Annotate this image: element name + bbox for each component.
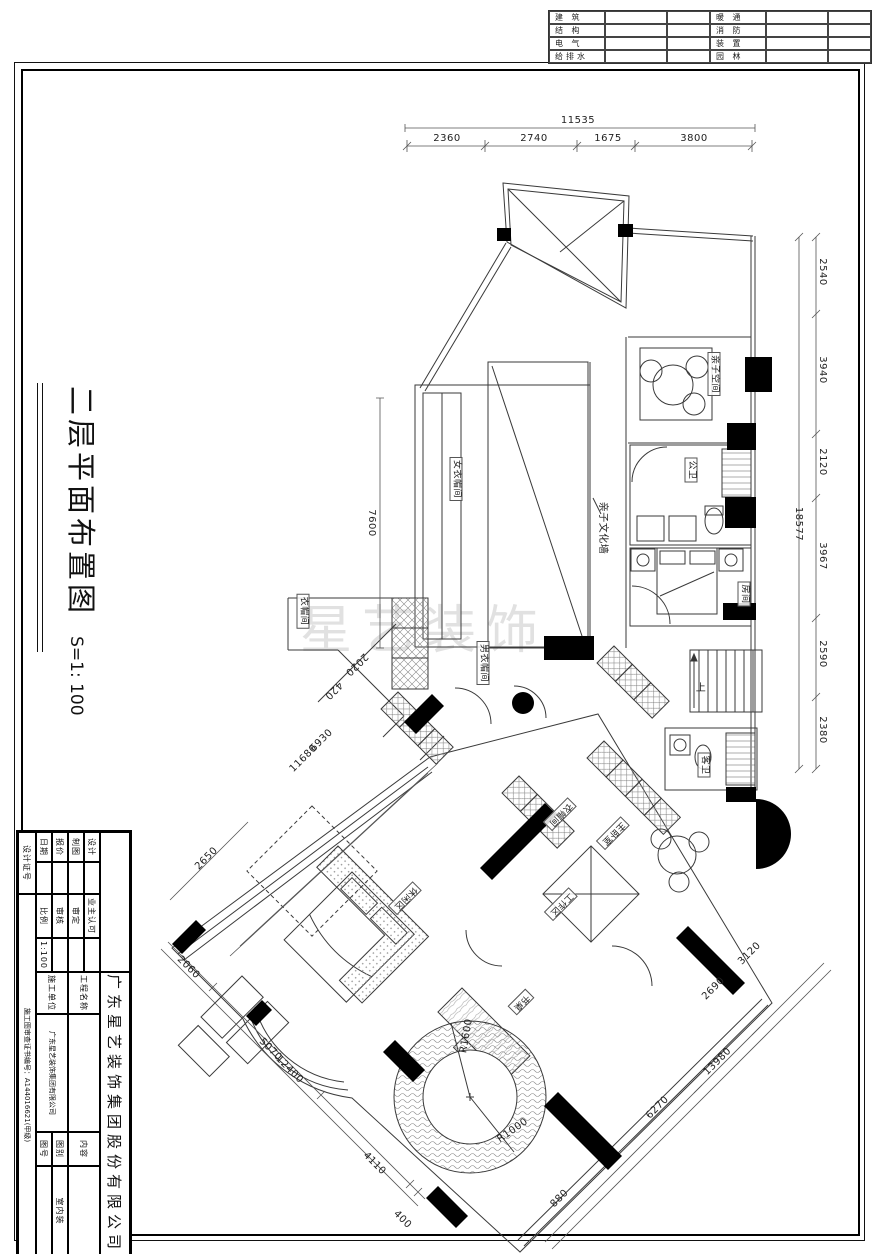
content-value (68, 1166, 100, 1254)
title-block: 广东星艺装饰集团股份有限公司 设计 业主认可 工程名称 内容 制图 审定 报价 … (16, 830, 132, 1254)
approved-label: 审定 (68, 894, 84, 938)
checked-value (52, 938, 68, 972)
title-rule-line (37, 383, 38, 652)
category-label: 图别 (52, 1132, 68, 1166)
owner-approve-value (84, 938, 100, 972)
draft-label: 制图 (68, 832, 84, 862)
scale-value: 1:100 (36, 938, 52, 972)
draft-value (68, 862, 84, 894)
builder-label: 施工单位 (36, 972, 68, 1014)
date-value (36, 862, 52, 894)
sheet-no-value (36, 1166, 52, 1254)
project-name-label: 工程名称 (68, 972, 100, 1014)
builder-value: 广东星艺装饰集团有限公司 (36, 1014, 68, 1132)
approved-value (68, 938, 84, 972)
title-block-blank (100, 832, 130, 972)
sheet-title-text: 二层平面布置图 (64, 386, 98, 617)
company-name: 广东星艺装饰集团股份有限公司 (100, 972, 130, 1254)
checked-label: 审核 (52, 894, 68, 938)
sheet-title-scale: S=1: 100 (66, 636, 86, 715)
content-label: 内容 (68, 1132, 100, 1166)
title-rule-line (42, 383, 43, 652)
design-value (84, 862, 100, 894)
sheet-title: 二层平面布置图 S=1: 100 (52, 386, 104, 648)
design-label: 设计 (84, 832, 100, 862)
quote-label: 报价 (52, 832, 68, 862)
cert-no-label: 设计证号 (18, 832, 36, 894)
cert-text: 施工图审查证书编号：A144016621(甲级) (18, 894, 36, 1254)
quote-value (52, 862, 68, 894)
project-name-value (68, 1014, 100, 1132)
date-label: 日期 (36, 832, 52, 862)
sheet-no-label: 图号 (36, 1132, 52, 1166)
scale-label: 比例 (36, 894, 52, 938)
owner-approve-label: 业主认可 (84, 894, 100, 938)
drawing-sheet: { "disciplines": { "rows": [["建 筑","暖 通"… (0, 0, 878, 1254)
category-value: 室内装 (52, 1166, 68, 1254)
